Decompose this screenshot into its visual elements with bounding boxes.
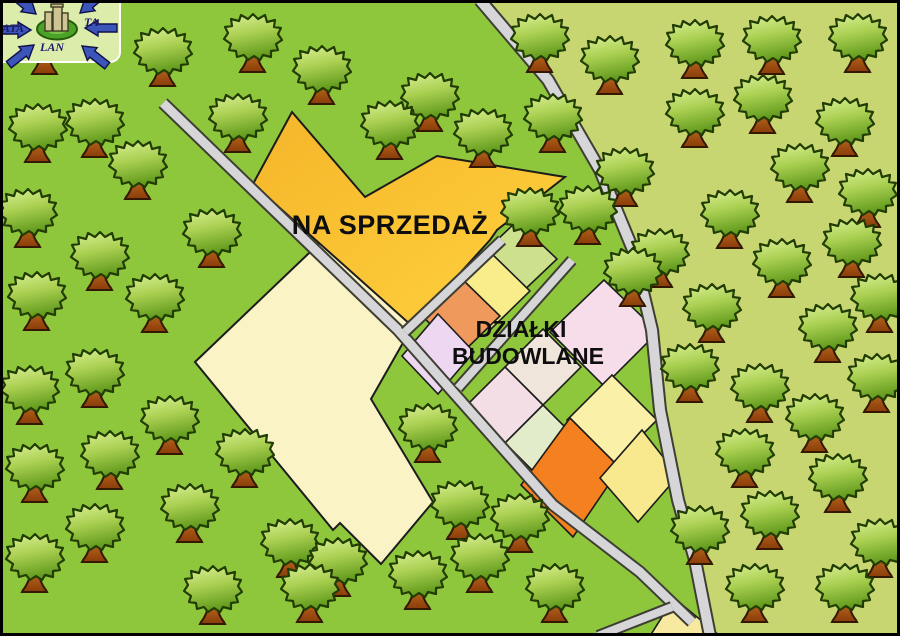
- label-dzialki-line2: BUDOWLANE: [452, 343, 604, 369]
- plot-map: NA SPRZEDAŻ DZIAŁKI BUDOWLANE ATA TA LAN: [0, 0, 900, 636]
- logo-text-bottom: LAN: [39, 40, 65, 54]
- label-na-sprzedaz: NA SPRZEDAŻ: [292, 210, 489, 240]
- logo-text-right: TA: [84, 15, 99, 29]
- label-dzialki-line1: DZIAŁKI: [476, 316, 567, 342]
- agency-logo-watermark: ATA TA LAN: [0, 0, 120, 72]
- logo-text-left: ATA: [1, 21, 24, 35]
